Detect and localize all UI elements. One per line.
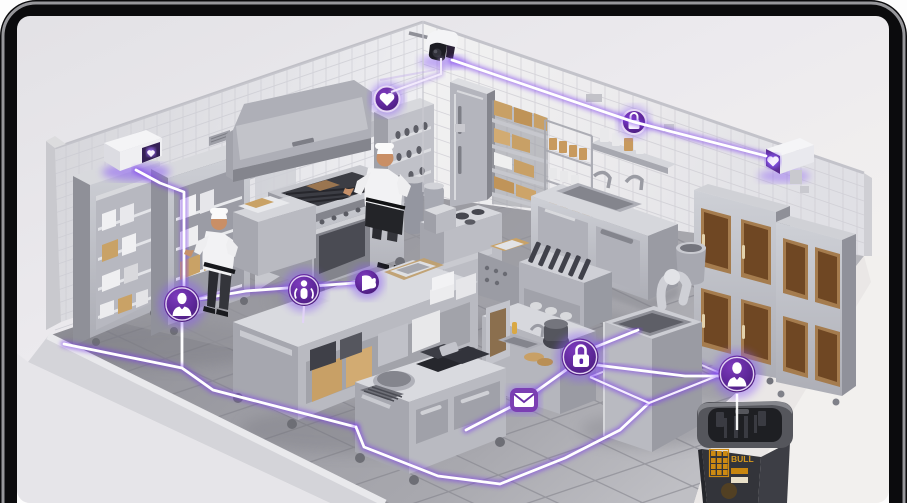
svg-text:BULL: BULL <box>731 454 754 464</box>
